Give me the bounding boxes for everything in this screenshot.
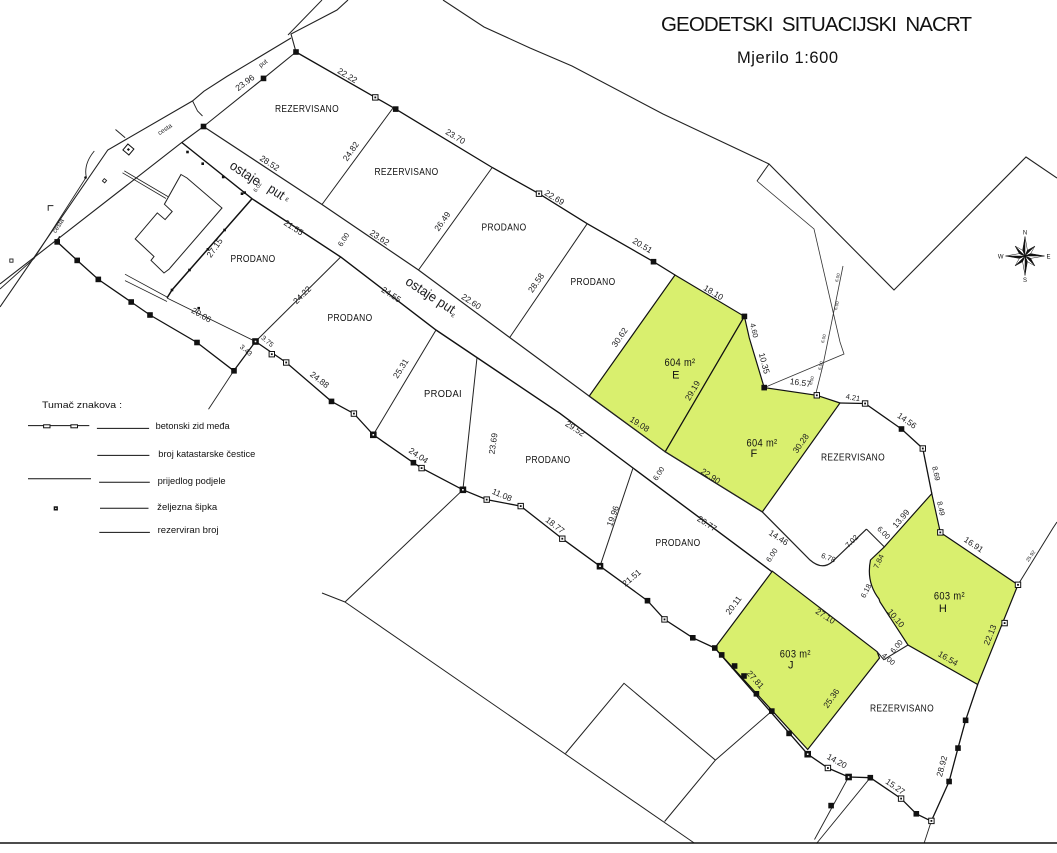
svg-text:603 m²: 603 m² <box>780 649 811 661</box>
svg-text:rezerviran broj: rezerviran broj <box>158 525 219 535</box>
svg-text:E: E <box>1047 255 1051 261</box>
svg-text:PRODANO: PRODANO <box>328 313 373 324</box>
svg-text:broj katastarske čestice: broj katastarske čestice <box>158 449 255 459</box>
svg-text:F: F <box>750 448 757 460</box>
svg-text:PRODANO: PRODANO <box>526 455 571 466</box>
svg-text:REZERVISANO: REZERVISANO <box>870 704 934 715</box>
svg-text:betonski zid međa: betonski zid međa <box>156 421 230 431</box>
svg-text:željezna šipka: željezna šipka <box>157 502 217 512</box>
svg-text:PRODANO: PRODANO <box>571 277 616 288</box>
svg-text:PRODANO: PRODANO <box>231 254 276 265</box>
svg-text:N: N <box>1023 231 1027 237</box>
svg-text:604 m²: 604 m² <box>665 357 696 369</box>
svg-text:PRODAI: PRODAI <box>424 389 462 400</box>
svg-text:GEODETSKI SITUACIJSKI NACRT: GEODETSKI SITUACIJSKI NACRT <box>661 13 973 36</box>
svg-text:H: H <box>939 603 947 615</box>
svg-text:W: W <box>998 255 1004 261</box>
svg-text:prijedlog podjele: prijedlog podjele <box>158 476 226 486</box>
svg-text:Mjerilo 1:600: Mjerilo 1:600 <box>737 49 838 67</box>
svg-text:PRODANO: PRODANO <box>656 538 701 549</box>
svg-text:PRODANO: PRODANO <box>482 223 527 234</box>
svg-text:REZERVISANO: REZERVISANO <box>821 453 885 464</box>
svg-text:603 m²: 603 m² <box>934 591 965 603</box>
svg-text:Tumač znakova :: Tumač znakova : <box>42 400 122 411</box>
svg-text:E: E <box>672 370 680 382</box>
svg-text:REZERVISANO: REZERVISANO <box>275 104 339 115</box>
svg-text:J: J <box>788 660 794 672</box>
svg-text:REZERVISANO: REZERVISANO <box>375 167 439 178</box>
svg-text:S: S <box>1023 278 1027 284</box>
